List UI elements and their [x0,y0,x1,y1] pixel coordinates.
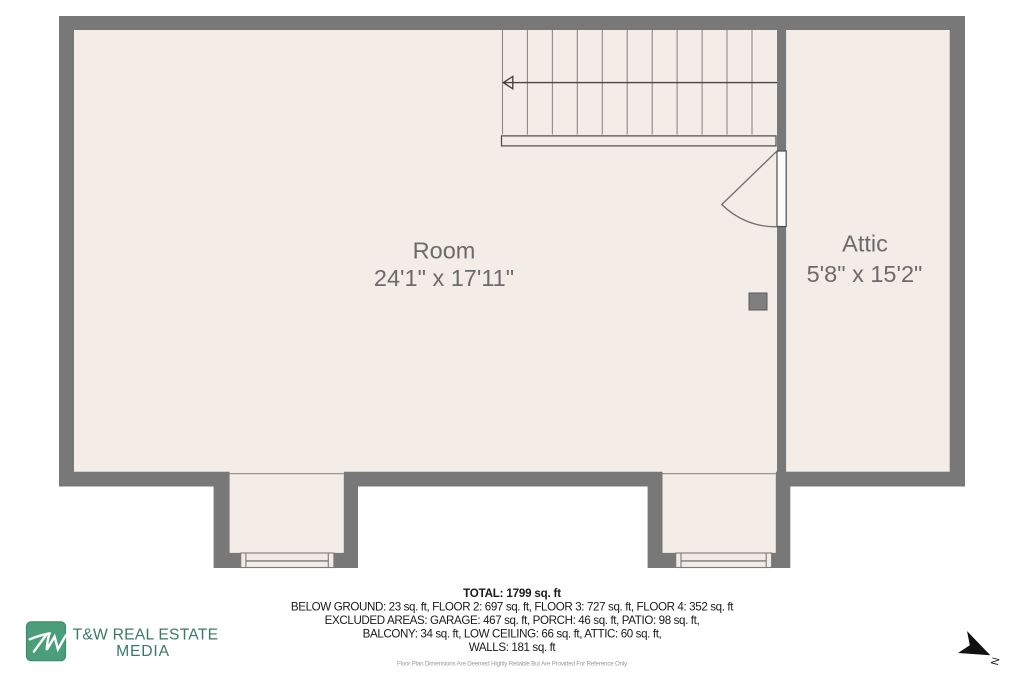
svg-text:BALCONY: 34 sq. ft, LOW CEILIN: BALCONY: 34 sq. ft, LOW CEILING: 66 sq. … [363,627,662,640]
svg-text:MEDIA: MEDIA [116,643,170,660]
svg-text:EXCLUDED AREAS: GARAGE: 467 sq: EXCLUDED AREAS: GARAGE: 467 sq. ft, PORC… [325,614,700,627]
svg-text:BELOW GROUND: 23 sq. ft, FLOOR: BELOW GROUND: 23 sq. ft, FLOOR 2: 697 sq… [291,601,734,614]
svg-text:24'1" x 17'11": 24'1" x 17'11" [374,265,514,291]
svg-text:WALLS: 181 sq. ft: WALLS: 181 sq. ft [469,641,557,654]
svg-text:Attic: Attic [842,231,888,257]
svg-text:N: N [988,656,1002,666]
svg-text:Floor Plan Dimensions Are Deem: Floor Plan Dimensions Are Deemed Highly … [397,660,628,667]
svg-text:T&W REAL ESTATE: T&W REAL ESTATE [73,627,219,644]
svg-text:5'8" x 15'2": 5'8" x 15'2" [807,261,923,287]
svg-text:Room: Room [413,238,476,264]
svg-text:TOTAL: 1799 sq. ft: TOTAL: 1799 sq. ft [463,587,561,600]
